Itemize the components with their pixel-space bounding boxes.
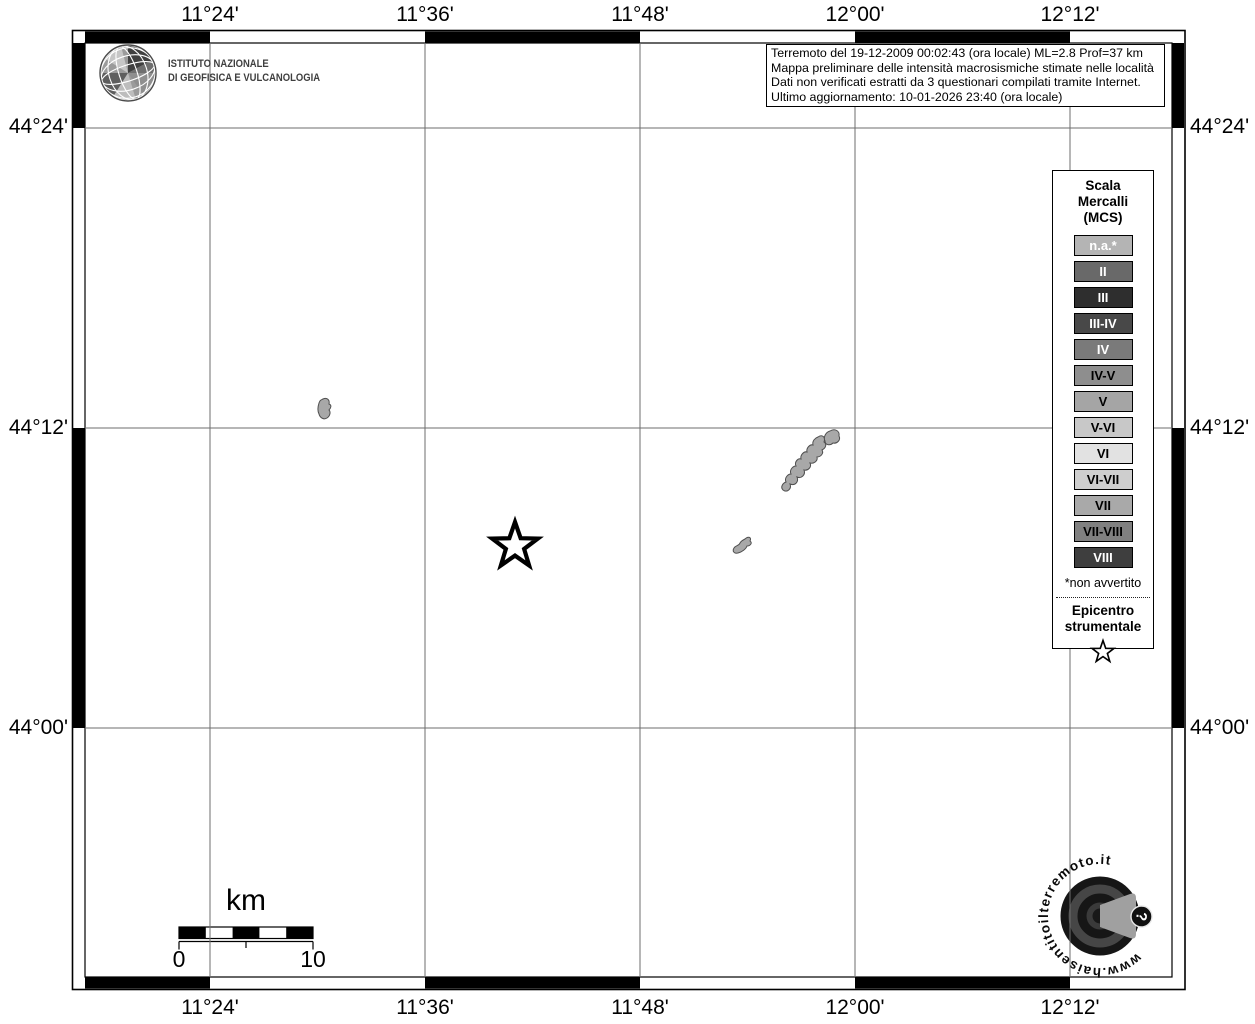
- lat-label-left-3: 44°00': [2, 716, 68, 740]
- scale-bar-zero-label: 0: [149, 946, 209, 973]
- legend-intensity-iv: IV: [1074, 339, 1133, 360]
- ingv-institute-name: ISTITUTO NAZIONALE DI GEOFISICA E VULCAN…: [168, 58, 320, 85]
- lon-label-top-3: 11°48': [611, 3, 669, 27]
- legend-intensity-vi-vii: VI-VII: [1074, 469, 1133, 490]
- legend-intensity-vii: VII: [1074, 495, 1133, 516]
- legend-intensity-v-vi: V-VI: [1074, 417, 1133, 438]
- lon-label-top-2: 11°36': [396, 3, 454, 27]
- ingv-name-line2: DI GEOFISICA E VULCANOLOGIA: [168, 72, 320, 86]
- legend-intensity-vi: VI: [1074, 443, 1133, 464]
- scale-bar-end-label: 10: [283, 946, 343, 973]
- lat-label-left-2: 44°12': [2, 416, 68, 440]
- legend-intensity-viii: VIII: [1074, 547, 1133, 568]
- scale-bar-unit-label: km: [206, 884, 286, 918]
- lon-label-bottom-3: 11°48': [611, 996, 669, 1020]
- info-line-event: Terremoto del 19-12-2009 00:02:43 (ora l…: [771, 46, 1160, 61]
- legend-intensity-vii-viii: VII-VIII: [1074, 521, 1133, 542]
- map-area-background: [85, 43, 1172, 977]
- legend-intensity-iii-iv: III-IV: [1074, 313, 1133, 334]
- info-line-map-type: Mappa preliminare delle intensità macros…: [771, 61, 1160, 76]
- question-mark: ?: [1132, 911, 1150, 922]
- ingv-name-line1: ISTITUTO NAZIONALE: [168, 58, 320, 72]
- lat-label-left-1: 44°24': [2, 115, 68, 139]
- lon-label-top-5: 12°12': [1040, 3, 1099, 27]
- lon-label-top-1: 11°24': [181, 3, 239, 27]
- lat-label-right-3: 44°00': [1190, 716, 1249, 740]
- legend-intensity-v: V: [1074, 391, 1133, 412]
- lon-label-bottom-1: 11°24': [181, 996, 239, 1020]
- legend-title-line1: Scala: [1053, 178, 1153, 194]
- legend-title-line3: (MCS): [1053, 210, 1153, 226]
- legend-intensity-iii: III: [1074, 287, 1133, 308]
- mercalli-legend: Scala Mercalli (MCS) n.a.* II III III-IV…: [1052, 170, 1154, 649]
- lon-label-bottom-2: 11°36': [396, 996, 454, 1020]
- legend-title: Scala Mercalli (MCS): [1053, 178, 1153, 226]
- info-line-updated-at: Ultimo aggiornamento: 10-01-2026 23:40 (…: [771, 90, 1160, 105]
- lon-label-top-4: 12°00': [825, 3, 884, 27]
- legend-title-line2: Mercalli: [1053, 194, 1153, 210]
- legend-intensity-ii: II: [1074, 261, 1133, 282]
- earthquake-info-box: Terremoto del 19-12-2009 00:02:43 (ora l…: [766, 44, 1165, 107]
- legend-intensity-iv-v: IV-V: [1074, 365, 1133, 386]
- locality-polygon-west: [318, 398, 331, 418]
- lat-label-right-2: 44°12': [1190, 416, 1249, 440]
- legend-intensity-na: n.a.*: [1074, 235, 1133, 256]
- lat-label-right-1: 44°24': [1190, 115, 1249, 139]
- macroseismic-map-page: { "header": { "ingv": { "line1": "ISTITU…: [0, 0, 1255, 1024]
- lon-label-bottom-5: 12°12': [1040, 996, 1099, 1020]
- legend-epicenter-label: Epicentro strumentale: [1053, 603, 1153, 635]
- legend-epicenter-line2: strumentale: [1053, 619, 1153, 635]
- legend-separator: [1056, 597, 1150, 598]
- lon-label-bottom-4: 12°00': [825, 996, 884, 1020]
- legend-epicenter-line1: Epicentro: [1053, 603, 1153, 619]
- info-line-data-note: Dati non verificati estratti da 3 questi…: [771, 75, 1160, 90]
- legend-epicenter-star-icon: [1089, 638, 1117, 666]
- legend-footnote: *non avvertito: [1053, 576, 1153, 590]
